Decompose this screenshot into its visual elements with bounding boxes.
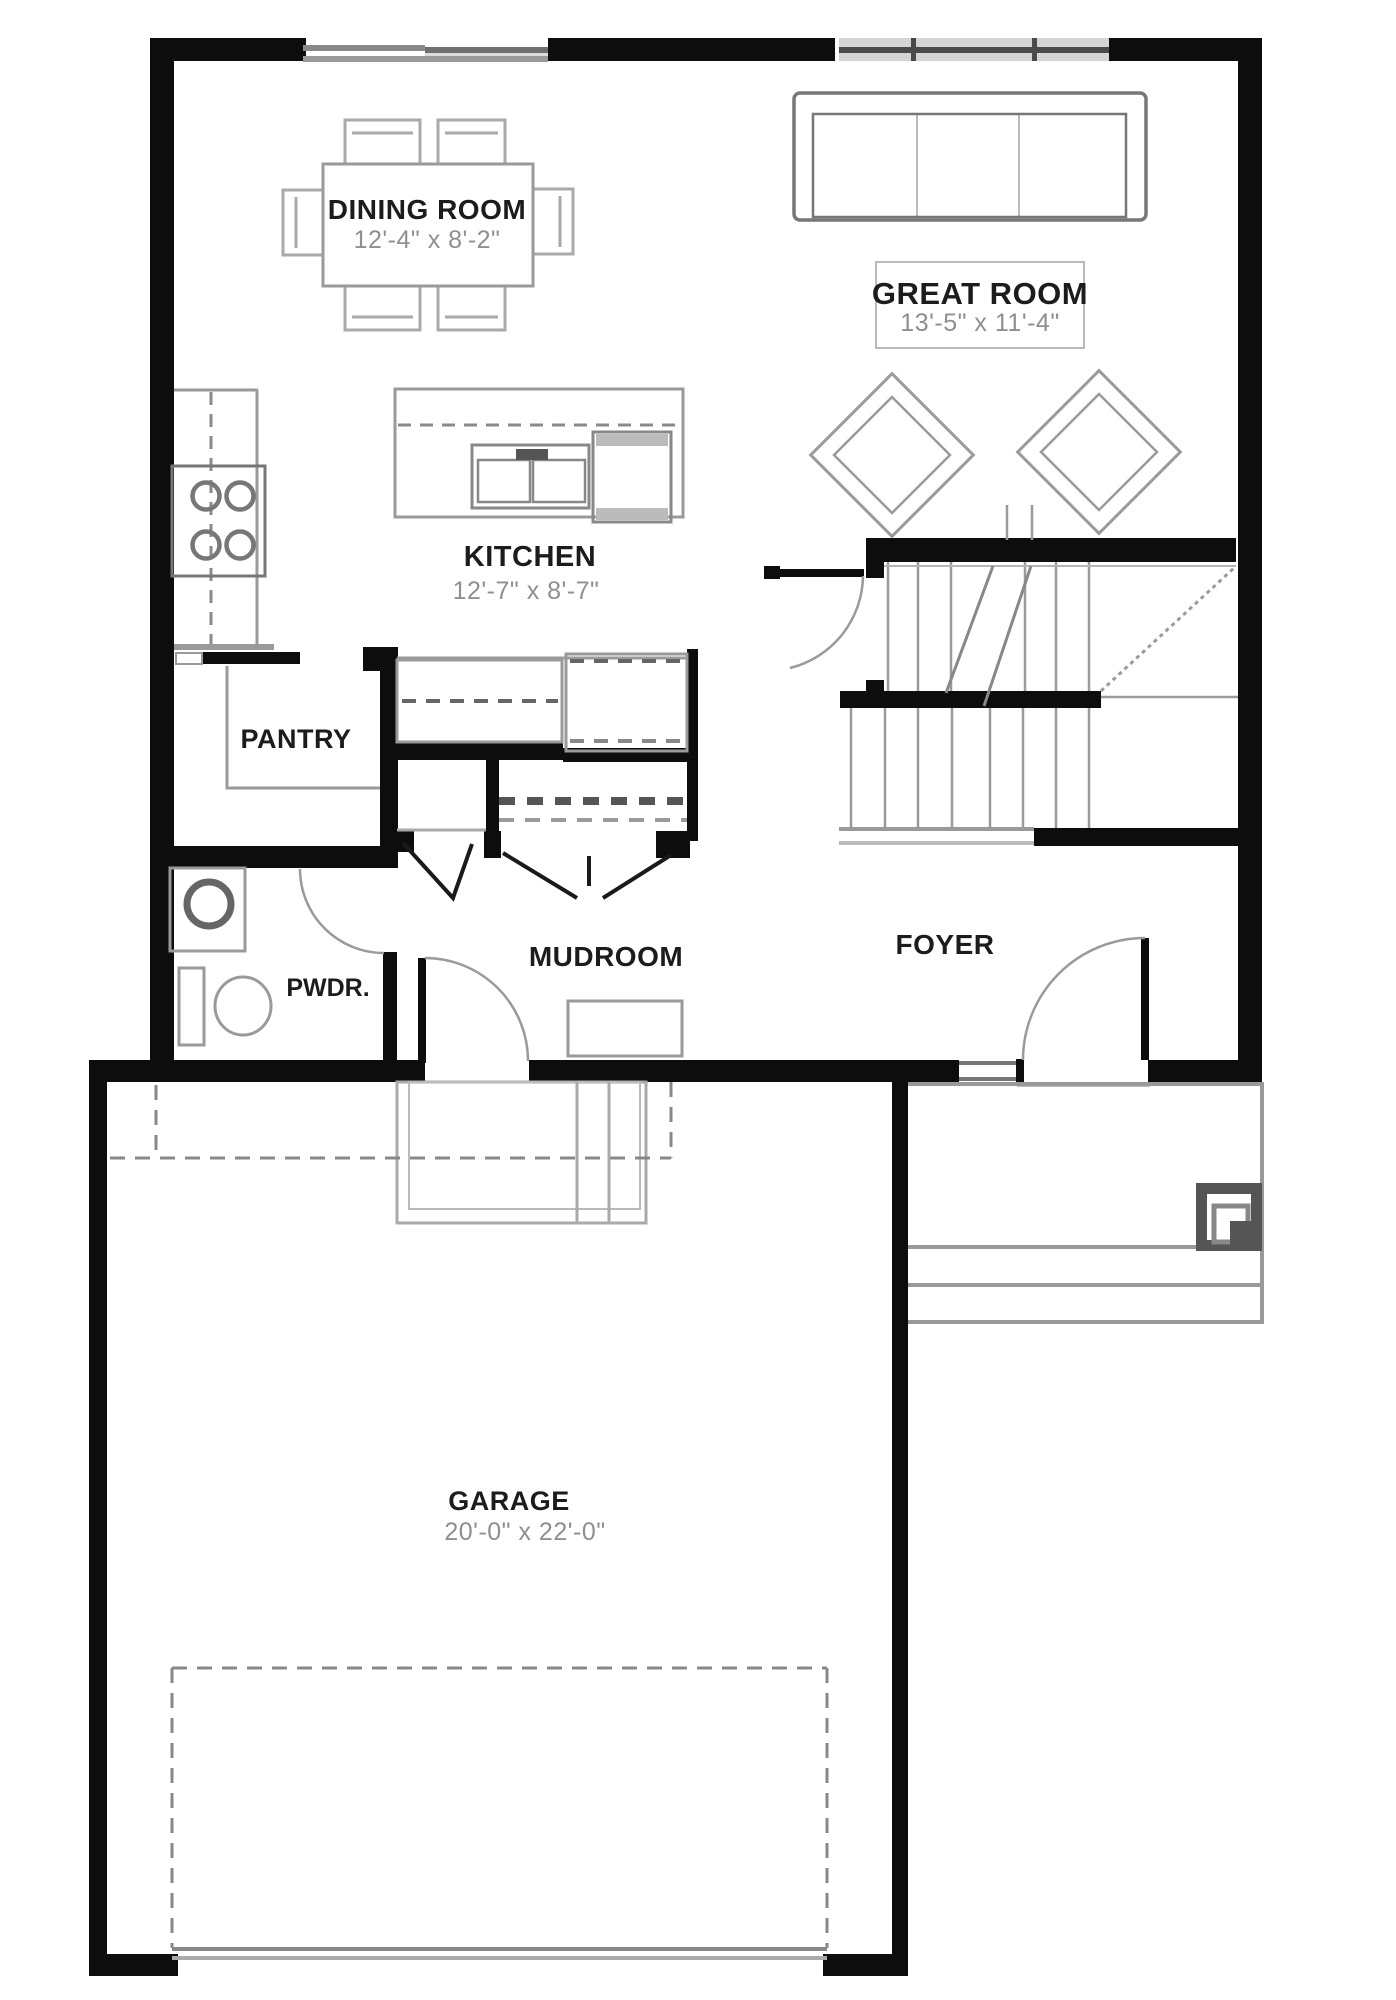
svg-text:12'-4" x 8'-2": 12'-4" x 8'-2" <box>354 226 501 254</box>
svg-text:GARAGE: GARAGE <box>448 1486 570 1516</box>
svg-text:12'-7" x 8'-7": 12'-7" x 8'-7" <box>453 577 600 605</box>
svg-text:DINING ROOM: DINING ROOM <box>328 194 526 225</box>
svg-text:FOYER: FOYER <box>896 929 995 960</box>
svg-text:PANTRY: PANTRY <box>241 724 352 754</box>
svg-text:13'-5" x 11'-4": 13'-5" x 11'-4" <box>900 309 1059 337</box>
svg-text:GREAT ROOM: GREAT ROOM <box>872 276 1088 311</box>
svg-text:PWDR.: PWDR. <box>286 974 369 1002</box>
svg-text:KITCHEN: KITCHEN <box>464 541 596 573</box>
svg-text:20'-0" x 22'-0": 20'-0" x 22'-0" <box>444 1518 605 1546</box>
svg-text:MUDROOM: MUDROOM <box>529 941 683 972</box>
